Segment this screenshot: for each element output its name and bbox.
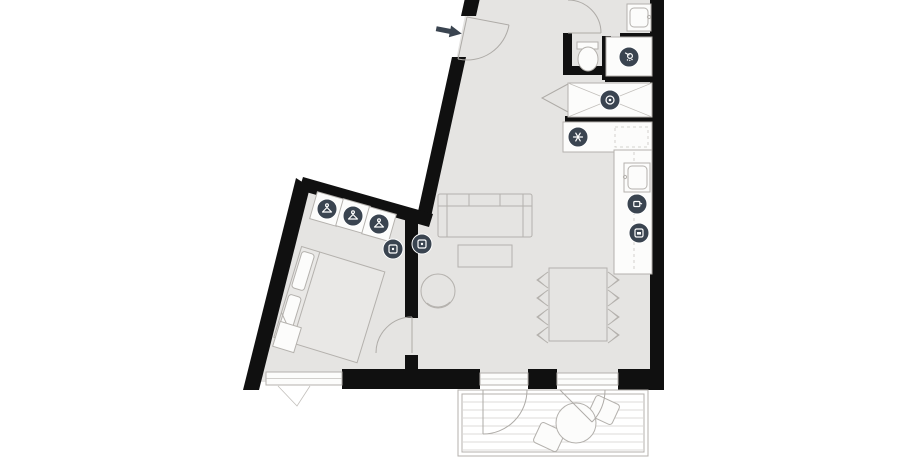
cooktop-icon[interactable] — [627, 194, 647, 214]
balcony — [458, 390, 648, 456]
shower-icon[interactable] — [619, 47, 639, 67]
fridge-snowflake-icon[interactable] — [568, 127, 588, 147]
wall-bottom-mid — [528, 369, 557, 389]
toilet-bowl — [578, 47, 598, 71]
oven-icon[interactable] — [629, 223, 649, 243]
wall-interior-upper — [405, 212, 418, 318]
living-device-icon[interactable] — [412, 234, 432, 254]
wall-bottom-right — [618, 369, 664, 390]
wardrobe-hanger-icon-2[interactable] — [343, 206, 363, 226]
balcony-table — [556, 403, 596, 443]
floor-plan-svg — [0, 0, 905, 460]
wall-interior-lower — [405, 355, 418, 373]
bedroom-device-icon[interactable] — [383, 239, 403, 259]
floor-plan-canvas — [0, 0, 905, 460]
wardrobe-hanger-icon-1[interactable] — [317, 199, 337, 219]
washing-machine-icon[interactable] — [600, 90, 620, 110]
entrance-arrow-icon — [435, 23, 463, 40]
balcony-door-1 — [483, 390, 527, 434]
window-tilt-symbol — [278, 386, 310, 406]
wardrobe-hanger-icon-3[interactable] — [369, 214, 389, 234]
